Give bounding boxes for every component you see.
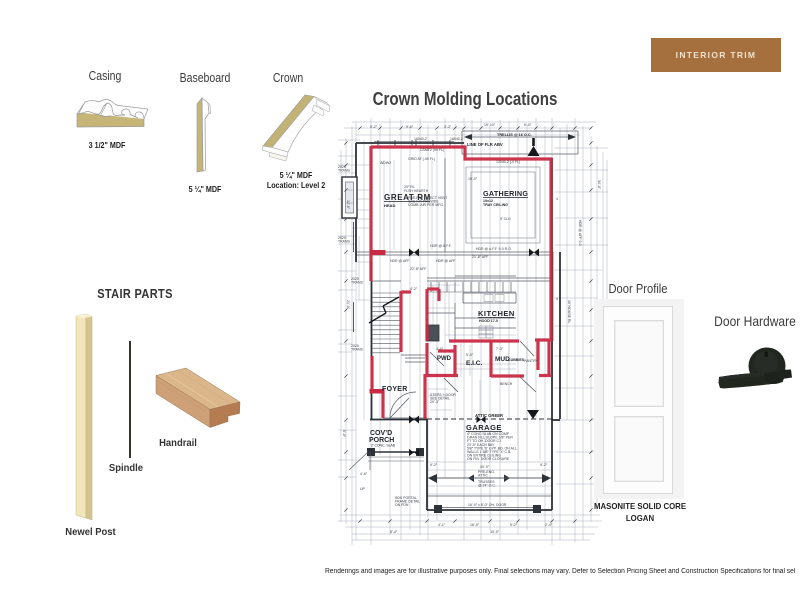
svg-text:30’-0″: 30’-0″ — [490, 530, 500, 534]
svg-text:34’-0″: 34’-0″ — [597, 180, 601, 190]
svg-text:16040-2: 16040-2 — [450, 137, 463, 141]
svg-text:16’ HOUSE RL: 16’ HOUSE RL — [567, 300, 571, 323]
svg-text:16040-2: 16040-2 — [414, 137, 427, 141]
svg-text:@ 24″ O.C.: @ 24″ O.C. — [478, 484, 496, 488]
svg-text:PANTRY: PANTRY — [524, 359, 539, 363]
svg-text:4’-1″: 4’-1″ — [438, 523, 446, 527]
svg-text:ON FDN: ON FDN — [395, 503, 409, 507]
svg-text:4: 4 — [556, 197, 558, 201]
svg-text:ATTIC GREER: ATTIC GREER — [475, 413, 503, 418]
svg-text:12’-6″: 12’-6″ — [346, 200, 350, 210]
svg-text:6’-0″: 6’-0″ — [342, 430, 346, 438]
svg-text:CUBBIES: CUBBIES — [508, 358, 525, 362]
svg-text:12040-2 (-0 FL): 12040-2 (-0 FL) — [496, 160, 520, 164]
svg-text:PWD: PWD — [437, 356, 452, 362]
svg-text:ATTIC: ATTIC — [478, 474, 488, 478]
svg-text:3’-2″: 3’-2″ — [444, 125, 452, 129]
svg-text:2’-4″: 2’-4″ — [545, 523, 553, 527]
svg-text:COMB. AIR PER MFG.: COMB. AIR PER MFG. — [408, 203, 444, 207]
svg-text:KITCHEN: KITCHEN — [478, 309, 515, 318]
svg-text:9’-2″: 9’-2″ — [540, 463, 548, 467]
svg-text:4’-2″: 4’-2″ — [410, 287, 418, 291]
svg-text:16’-0″: 16’-0″ — [470, 523, 480, 527]
svg-text:20’-3″: 20’-3″ — [430, 400, 440, 404]
svg-text:21’-0″: 21’-0″ — [346, 300, 350, 310]
svg-text:30’-0″: 30’-0″ — [480, 465, 490, 469]
svg-text:22’-8″ AFF: 22’-8″ AFF — [410, 267, 426, 271]
svg-text:2’ CONC. SLAB: 2’ CONC. SLAB — [371, 444, 396, 448]
svg-text:4’-6″: 4’-6″ — [360, 472, 368, 476]
svg-text:TRANS: TRANS — [338, 169, 351, 173]
svg-text:HDR @ A.F.F.: HDR @ A.F.F. — [430, 244, 452, 248]
svg-text:LINE OF FLR ABV: LINE OF FLR ABV — [467, 142, 503, 147]
svg-text:HOOD 17-0: HOOD 17-0 — [479, 319, 498, 323]
svg-text:6’-0″: 6’-0″ — [524, 123, 532, 127]
svg-text:9’-2″: 9’-2″ — [430, 463, 438, 467]
svg-text:HDR @ AFF: HDR @ AFF — [390, 259, 410, 263]
svg-text:5’-2″: 5’-2″ — [370, 125, 378, 129]
svg-text:19’-10″: 19’-10″ — [484, 123, 496, 127]
svg-text:HDR @ AFF: HDR @ AFF — [436, 259, 456, 263]
svg-text:HDR @ A.F.F. 9-0 R.O.: HDR @ A.F.F. 9-0 R.O. — [476, 247, 512, 251]
svg-text:GARAGE: GARAGE — [466, 423, 502, 432]
svg-text:7’-3″: 7’-3″ — [496, 347, 504, 351]
svg-text:TRANS: TRANS — [351, 281, 364, 285]
svg-text:GRID AT (-90 FL): GRID AT (-90 FL) — [408, 157, 435, 161]
svg-text:19’-0″: 19’-0″ — [468, 177, 478, 181]
svg-text:8’-4″: 8’-4″ — [390, 530, 398, 534]
svg-text:E.I.C.: E.I.C. — [466, 360, 482, 367]
svg-text:HDR @ AFF 9-0: HDR @ AFF 9-0 — [578, 220, 582, 246]
svg-text:TRELLIS @ 16 O.C.: TRELLIS @ 16 O.C. — [497, 133, 532, 137]
svg-text:FLSH HEARTH: FLSH HEARTH — [404, 189, 429, 193]
svg-text:4: 4 — [556, 297, 558, 301]
svg-text:WDW2: WDW2 — [380, 161, 391, 165]
svg-text:21’-8″ AFF: 21’-8″ AFF — [472, 255, 488, 259]
svg-text:TRANS: TRANS — [338, 240, 351, 244]
svg-text:5’-0″: 5’-0″ — [466, 353, 474, 357]
svg-text:9’-6″: 9’-6″ — [406, 125, 414, 129]
svg-text:GATHERING: GATHERING — [483, 189, 528, 198]
svg-text:FOYER: FOYER — [382, 386, 408, 393]
svg-text:5’-2″: 5’-2″ — [510, 523, 518, 527]
svg-text:TRAY CEILING: TRAY CEILING — [483, 203, 508, 207]
svg-text:9’ CLG: 9’ CLG — [500, 217, 511, 221]
svg-text:COV’D: COV’D — [370, 430, 392, 437]
svg-text:ON FIN. DOOR CLOSURE: ON FIN. DOOR CLOSURE — [467, 457, 510, 461]
svg-text:CSMT2 (90 FL): CSMT2 (90 FL) — [420, 148, 444, 152]
svg-text:16’-0″ x 8’-0″ OH. DOOR: 16’-0″ x 8’-0″ OH. DOOR — [468, 503, 507, 507]
svg-text:HEAD: HEAD — [384, 203, 395, 208]
svg-text:BENCH: BENCH — [500, 382, 513, 386]
svg-text:TRANS: TRANS — [351, 348, 364, 352]
svg-text:UP: UP — [360, 487, 366, 491]
svg-text:3’-0″: 3’-0″ — [436, 347, 444, 351]
